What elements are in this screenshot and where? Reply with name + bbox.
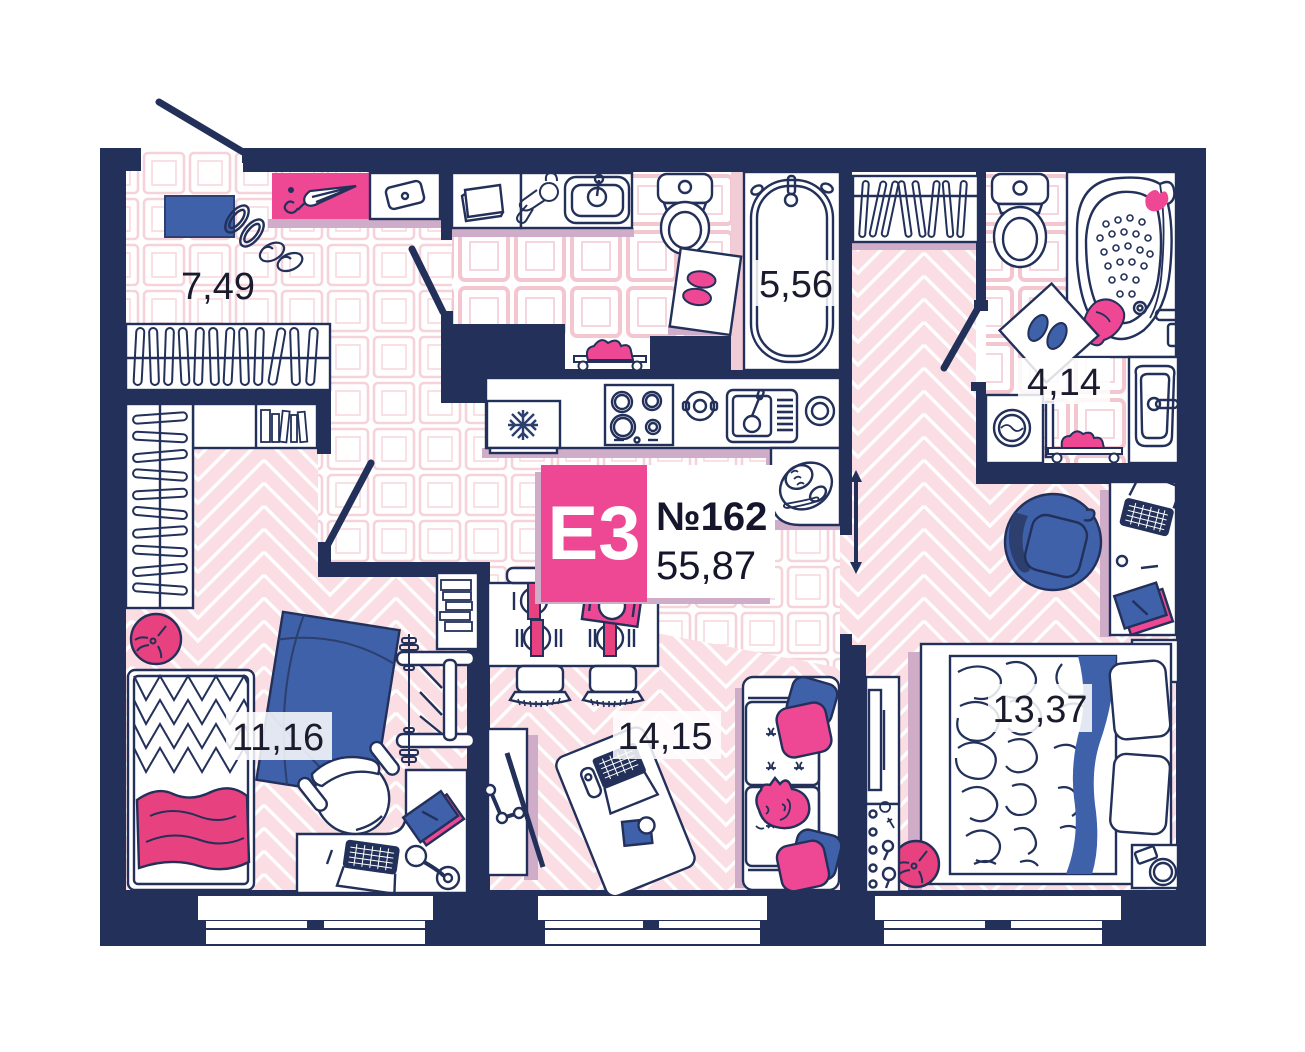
svg-text:13,37: 13,37 [992, 689, 1087, 731]
svg-text:11,16: 11,16 [232, 717, 324, 759]
svg-text:№162: №162 [656, 495, 767, 539]
svg-text:5,56: 5,56 [759, 264, 833, 306]
svg-text:55,87: 55,87 [656, 544, 756, 588]
svg-text:14,15: 14,15 [617, 716, 712, 758]
svg-text:4,14: 4,14 [1027, 362, 1101, 404]
svg-text:7,49: 7,49 [181, 266, 255, 308]
svg-text:E3: E3 [548, 491, 641, 576]
